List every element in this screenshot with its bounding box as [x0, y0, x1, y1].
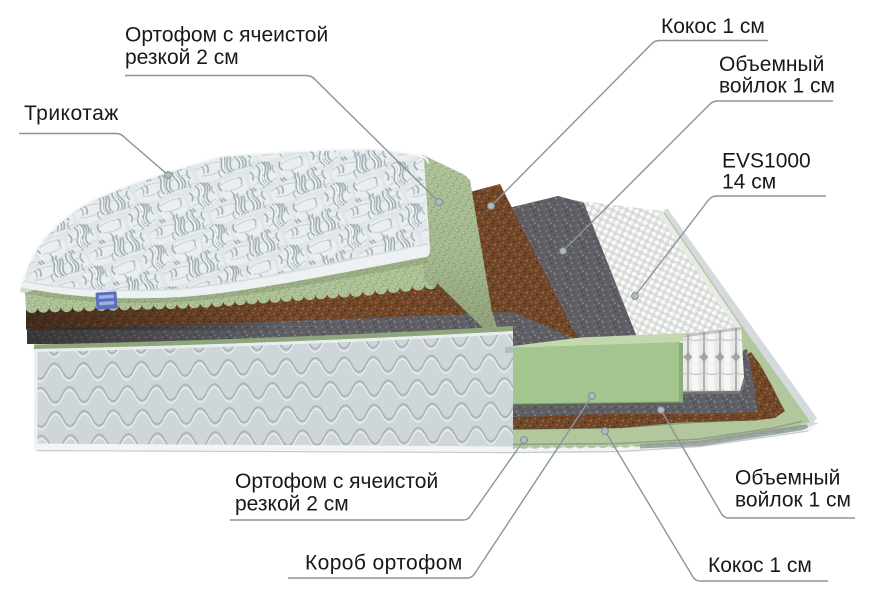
svg-text:14 см: 14 см — [722, 171, 776, 194]
svg-text:Кокос 1 см: Кокос 1 см — [661, 15, 765, 38]
svg-text:Трикотаж: Трикотаж — [24, 102, 119, 125]
svg-text:войлок 1 см: войлок 1 см — [735, 489, 851, 512]
svg-text:Ортофом с ячеистой: Ортофом с ячеистой — [125, 24, 328, 47]
svg-text:Ортофом с ячеистой: Ортофом с ячеистой — [235, 470, 438, 493]
svg-text:войлок 1 см: войлок 1 см — [719, 75, 835, 98]
svg-text:EVS1000: EVS1000 — [722, 150, 811, 173]
svg-text:резкой 2 см: резкой 2 см — [235, 493, 349, 516]
svg-text:Короб ортофом: Короб ортофом — [305, 552, 463, 575]
svg-text:Объемный: Объемный — [735, 467, 840, 490]
svg-text:Объемный: Объемный — [719, 53, 824, 76]
svg-text:резкой 2 см: резкой 2 см — [125, 46, 239, 69]
svg-text:Кокос 1 см: Кокос 1 см — [708, 554, 812, 577]
